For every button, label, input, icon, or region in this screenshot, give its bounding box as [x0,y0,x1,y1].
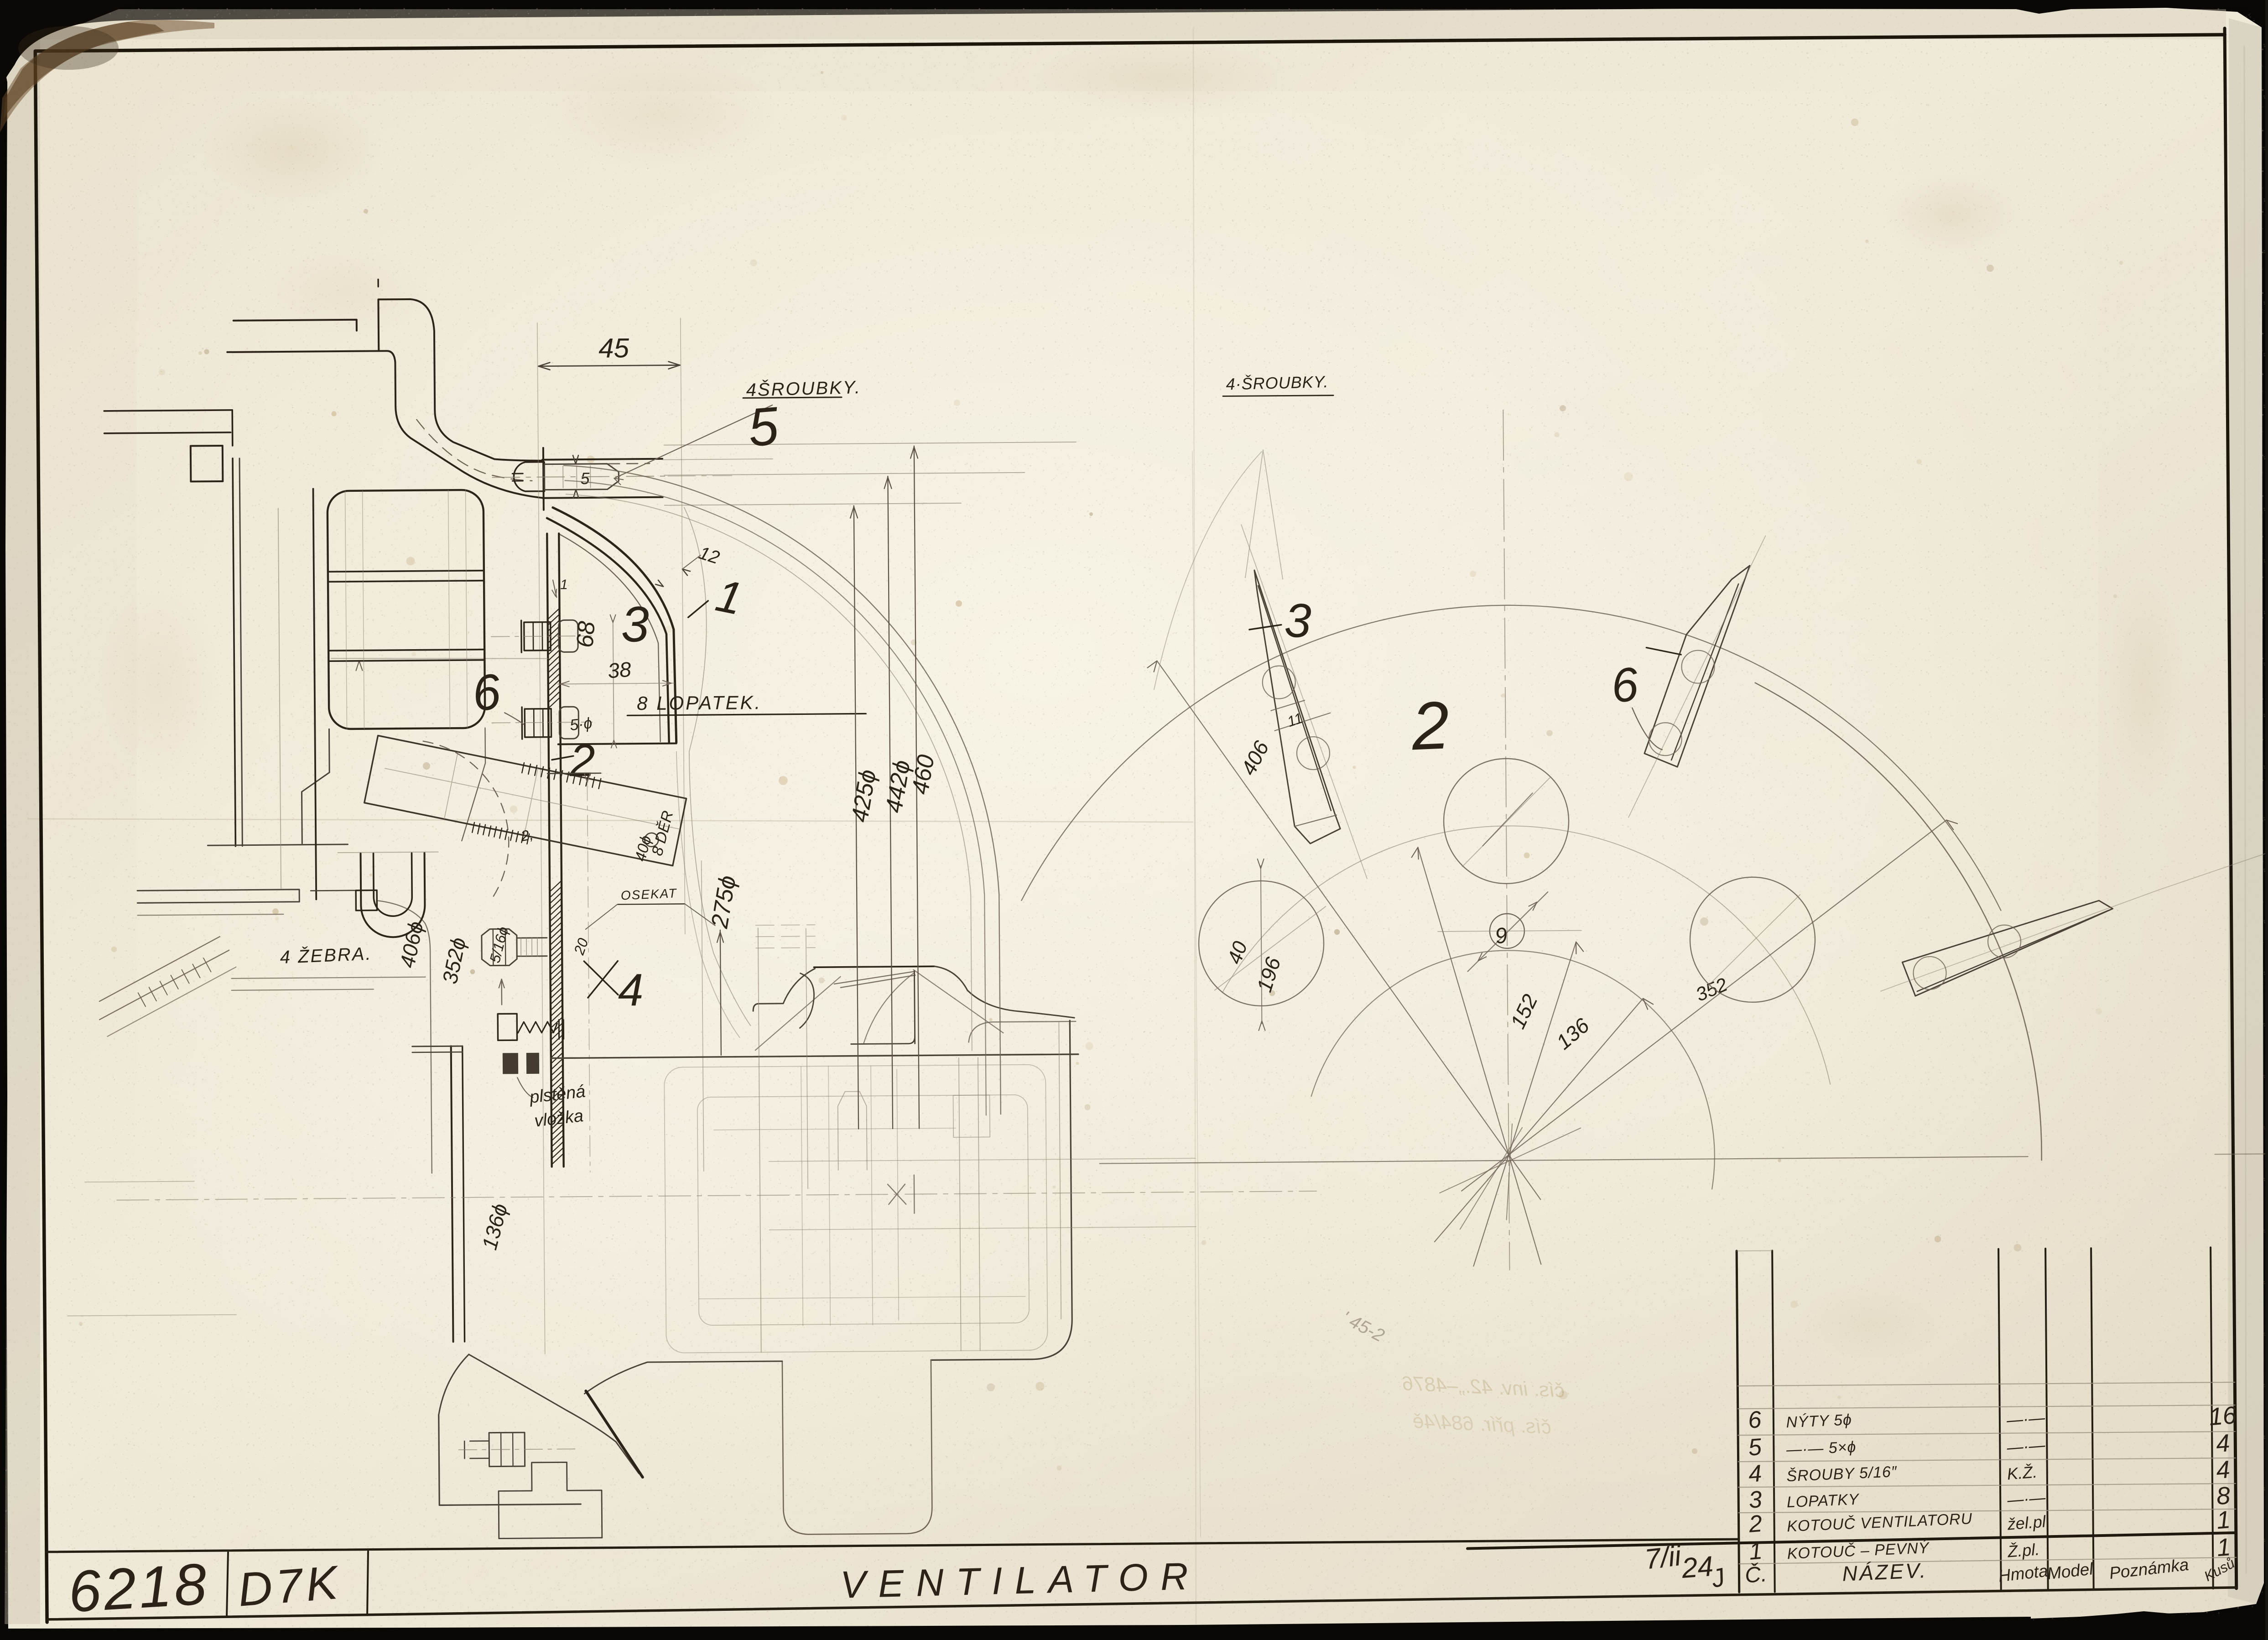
svg-text:NÝTY 5ϕ: NÝTY 5ϕ [1786,1411,1852,1431]
svg-text:5: 5 [580,469,590,488]
svg-text:16: 16 [2208,1401,2237,1431]
svg-text:4: 4 [2215,1456,2231,1484]
svg-text:—·—: —·— [2006,1488,2047,1510]
svg-text:6: 6 [1609,657,1641,713]
svg-text:4·ŠROUBKY.: 4·ŠROUBKY. [1226,372,1329,394]
svg-text:2: 2 [1410,687,1451,764]
svg-text:2: 2 [569,735,595,786]
svg-text:4: 4 [618,964,643,1015]
svg-text:1: 1 [1748,1538,1763,1565]
svg-text:6218: 6218 [67,1551,211,1624]
svg-text:1: 1 [560,577,568,592]
svg-text:3: 3 [1284,594,1312,648]
svg-text:6: 6 [1747,1406,1762,1434]
svg-text:4 ŽEBRA.: 4 ŽEBRA. [280,943,373,968]
svg-text:OSEKAT: OSEKAT [620,886,677,902]
svg-text:D7K: D7K [236,1556,343,1617]
svg-text:—·—: —·— [2005,1408,2046,1430]
svg-text:45: 45 [598,333,629,364]
svg-text:1: 1 [2216,1506,2232,1534]
svg-text:38: 38 [607,657,632,683]
svg-text:3: 3 [621,596,649,652]
svg-text:5·ϕ: 5·ϕ [569,714,593,734]
svg-text:Ž.pl.: Ž.pl. [2007,1540,2040,1561]
svg-text:2: 2 [1748,1510,1763,1538]
svg-text:4: 4 [2215,1429,2231,1458]
svg-text:LOPATKY: LOPATKY [1786,1491,1860,1511]
svg-text:4: 4 [1748,1460,1763,1488]
svg-text:7/ii: 7/ii [1643,1540,1684,1576]
svg-text:8 LOPATEK.: 8 LOPATEK. [637,692,762,714]
svg-text:3: 3 [1748,1486,1763,1514]
svg-text:68: 68 [572,620,600,648]
svg-text:VENTILATOR: VENTILATOR [840,1554,1201,1606]
svg-text:Č.: Č. [1744,1562,1768,1588]
svg-text:—·— 5×ϕ: —·— 5×ϕ [1785,1438,1857,1459]
svg-text:K.Ž.: K.Ž. [2006,1463,2038,1484]
svg-text:—·—: —·— [2006,1435,2046,1457]
svg-text:5: 5 [746,396,781,458]
svg-text:5: 5 [1748,1434,1763,1461]
svg-text:žel.pl: žel.pl [2006,1512,2047,1534]
svg-text:NÁZEV.: NÁZEV. [1841,1558,1928,1586]
